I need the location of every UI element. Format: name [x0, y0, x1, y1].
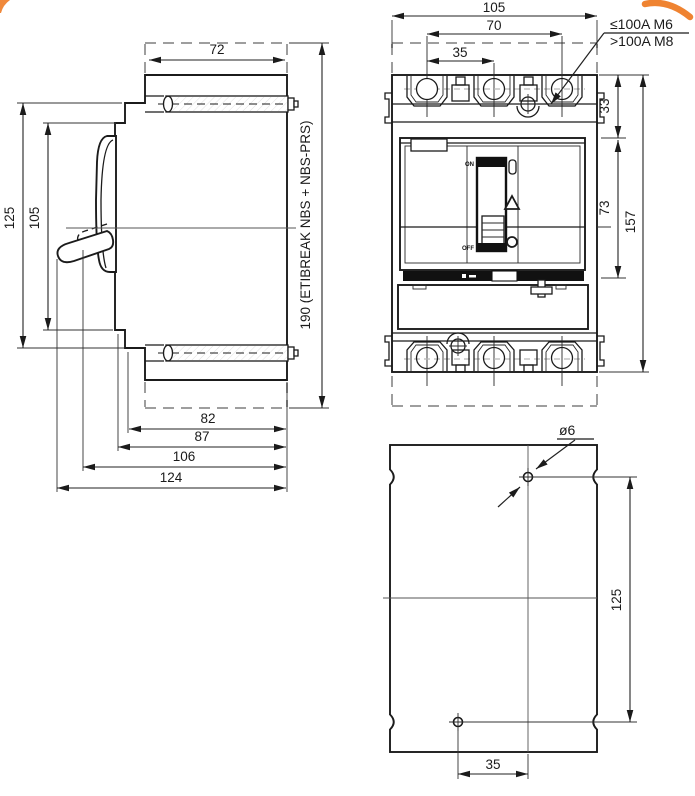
mounting-view: ø6 125 35: [383, 422, 637, 779]
dim-label-87: 87: [194, 429, 209, 444]
side-view: 72 125 105 190 (ETIBREAK NBS + NBS-PRS) …: [2, 42, 329, 492]
dimension-drawing: 72 125 105 190 (ETIBREAK NBS + NBS-PRS) …: [0, 0, 695, 796]
side-body-outline: [115, 75, 287, 380]
dim-label-125-side: 125: [2, 207, 17, 230]
dim-label-35-front: 35: [452, 45, 467, 60]
note-line2: >100A M8: [610, 33, 674, 49]
logo-swoosh-icon: [0, 0, 10, 13]
rating-label-band: [403, 271, 584, 281]
dim-label-73: 73: [597, 200, 612, 215]
side-terminal-bar-top: [158, 96, 298, 112]
dim-label-124: 124: [160, 470, 183, 485]
circle-marker-icon: [507, 237, 517, 247]
eti-watermark: [0, 0, 690, 17]
dim-label-105-side: 105: [27, 207, 42, 230]
dim-label-35-mounting: 35: [485, 757, 500, 772]
cover-notch: [411, 139, 447, 151]
front-view: ON OFF 105 70 35: [385, 0, 689, 406]
dim-label-82: 82: [200, 411, 215, 426]
lower-panel: [398, 280, 588, 329]
dim-label-72: 72: [209, 42, 224, 57]
mounting-plate-outline: [390, 445, 597, 752]
dim-label-190: 190 (ETIBREAK NBS + NBS-PRS): [298, 121, 313, 330]
front-toggle-handle: [477, 158, 506, 251]
dim-label-106: 106: [173, 449, 196, 464]
screw-head-icon: [288, 347, 294, 359]
side-terminal-bar-bottom: [158, 345, 298, 361]
dim-label-70: 70: [486, 18, 501, 33]
on-label: ON: [465, 162, 474, 168]
dim-label-o6: ø6: [559, 422, 576, 438]
logo-swoosh-icon: [645, 3, 690, 17]
dim-label-125-mounting: 125: [609, 589, 624, 612]
dim-label-33: 33: [597, 98, 612, 113]
dim-label-157: 157: [623, 211, 638, 234]
indicator-pill-icon: [509, 160, 516, 174]
note-line1: ≤100A M6: [610, 16, 673, 32]
screw-head-icon: [288, 98, 294, 110]
brand-marks: [462, 274, 466, 278]
drawing-svg: 72 125 105 190 (ETIBREAK NBS + NBS-PRS) …: [0, 0, 695, 796]
dim-label-105-front: 105: [483, 0, 506, 15]
off-label: OFF: [462, 246, 474, 252]
